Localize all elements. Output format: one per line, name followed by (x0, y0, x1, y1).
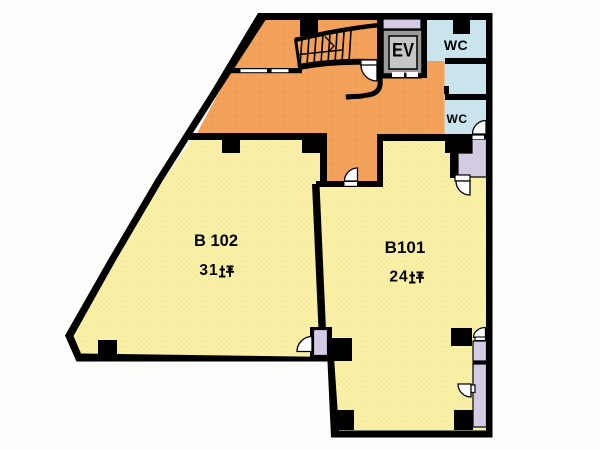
svg-text:B 102: B 102 (194, 232, 238, 250)
svg-text:31: 31 (199, 262, 218, 279)
svg-text:WC: WC (444, 37, 468, 53)
svg-text:WC: WC (447, 112, 468, 126)
svg-text:B101: B101 (385, 238, 426, 257)
svg-text:24: 24 (389, 269, 408, 286)
svg-text:EV: EV (392, 41, 414, 62)
